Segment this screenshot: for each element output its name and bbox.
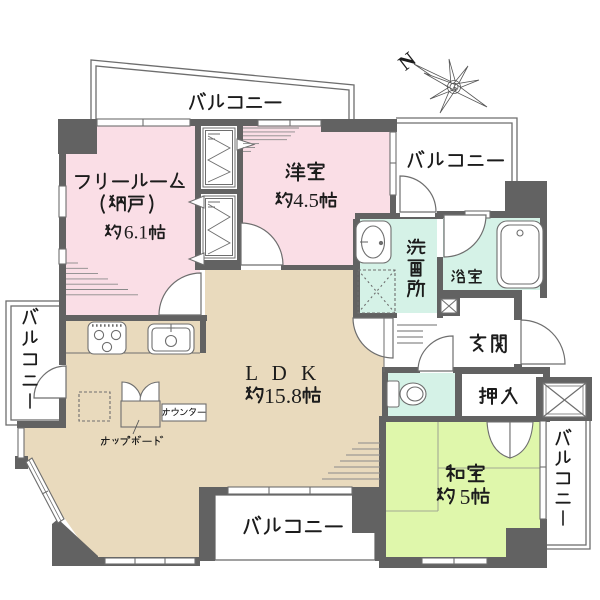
svg-text:4.5: 4.5 xyxy=(293,190,319,212)
svg-text:15.8: 15.8 xyxy=(264,384,302,408)
svg-text:6.1: 6.1 xyxy=(124,223,148,244)
svg-text:L D K: L D K xyxy=(245,361,320,385)
svg-text:5: 5 xyxy=(460,485,471,509)
